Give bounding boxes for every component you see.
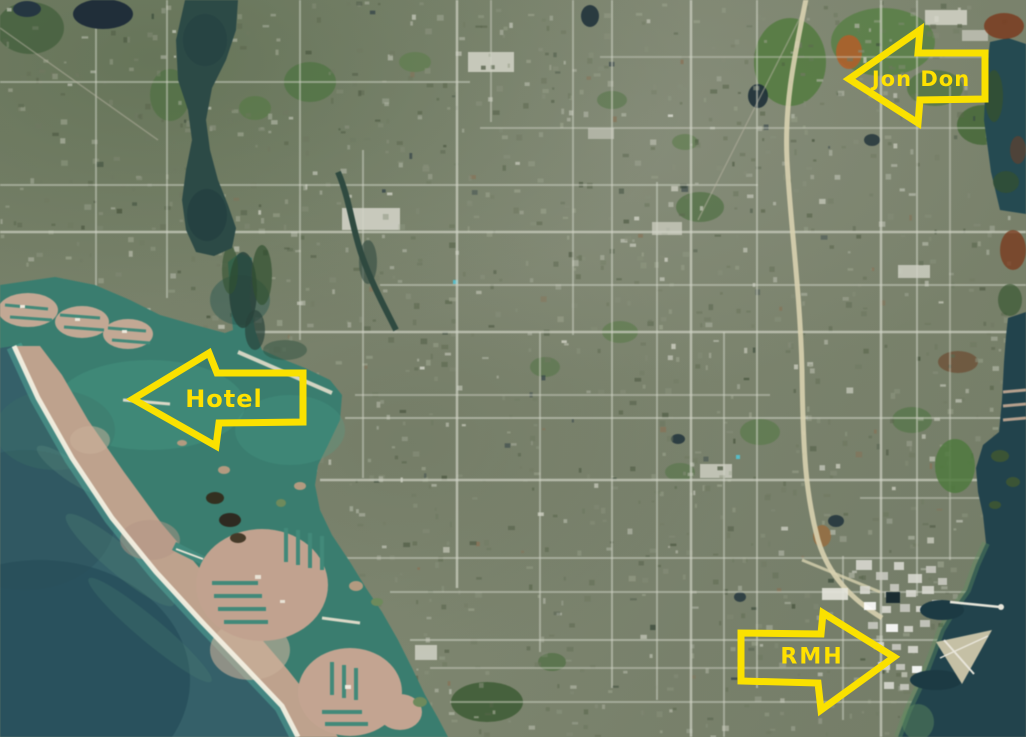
callout-overlay [0,0,1026,737]
callout-label-rmh: RMH [780,645,843,670]
callout-label-hotel: Hotel [185,385,263,413]
annotated-satellite-map: Jon Don Hotel RMH [0,0,1026,737]
callout-label-jon-don: Jon Don [872,67,970,91]
